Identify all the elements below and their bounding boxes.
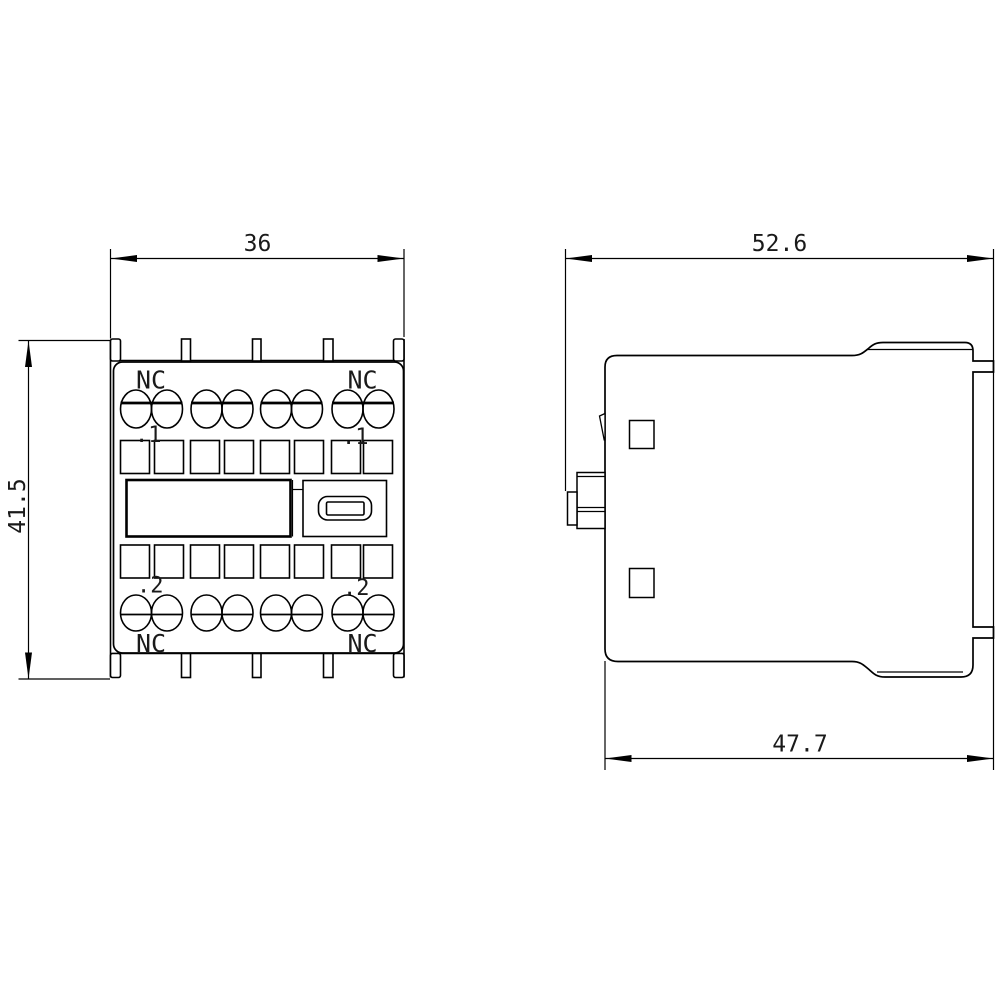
side-view (568, 343, 994, 678)
terminal-mark-top-left: .1 (135, 423, 162, 448)
dimension-front-width: 36 (111, 231, 405, 339)
mounting-tab (111, 339, 121, 361)
terminal-mark-bottom-right: .2 (343, 576, 370, 601)
arrowhead-right (378, 255, 405, 262)
clip-body (577, 473, 605, 529)
drawing-canvas: NC NC NC NC .1 .1 .2 .2 (0, 0, 1000, 1000)
nc-label-bottom-left: NC (136, 629, 166, 658)
arrowhead-left (605, 755, 632, 762)
arrowhead-left (566, 255, 593, 262)
front-view: NC NC NC NC .1 .1 .2 .2 (111, 339, 405, 678)
dimension-front-height: 41.5 (5, 341, 110, 680)
dimension-value-depth-total: 52.6 (752, 231, 807, 257)
latch-notch (600, 414, 606, 441)
mounting-tab (111, 654, 121, 678)
dimension-value-front-height: 41.5 (5, 478, 31, 533)
arrowhead-left (111, 255, 138, 262)
mounting-tab (182, 339, 191, 361)
terminal-mark-bottom-left: .2 (137, 574, 164, 599)
arrowhead-top (25, 341, 32, 368)
dimension-value-front-width: 36 (244, 231, 272, 257)
arrowhead-bottom (25, 653, 32, 680)
mounting-tab (394, 339, 405, 361)
mounting-tab (394, 654, 405, 678)
terminal-mark-top-right: .1 (342, 425, 369, 450)
mounting-tab (324, 339, 334, 361)
arrowhead-right (967, 755, 994, 762)
mounting-tab (253, 339, 262, 361)
nc-label-top-right: NC (347, 366, 377, 395)
nc-label-bottom-right: NC (347, 629, 377, 658)
dimension-value-depth-lower: 47.7 (772, 732, 827, 758)
clip-plunger (568, 492, 578, 525)
arrowhead-right (967, 255, 994, 262)
front-face (114, 362, 404, 653)
side-body-outline (605, 343, 994, 678)
technical-drawing: NC NC NC NC .1 .1 .2 .2 (0, 0, 1000, 1000)
mounting-clip (568, 473, 606, 529)
top-mounting-tabs (111, 339, 405, 361)
mounting-tab (324, 654, 334, 678)
mounting-tab (253, 654, 262, 678)
nc-label-top-left: NC (136, 366, 166, 395)
mounting-tab (182, 654, 191, 678)
